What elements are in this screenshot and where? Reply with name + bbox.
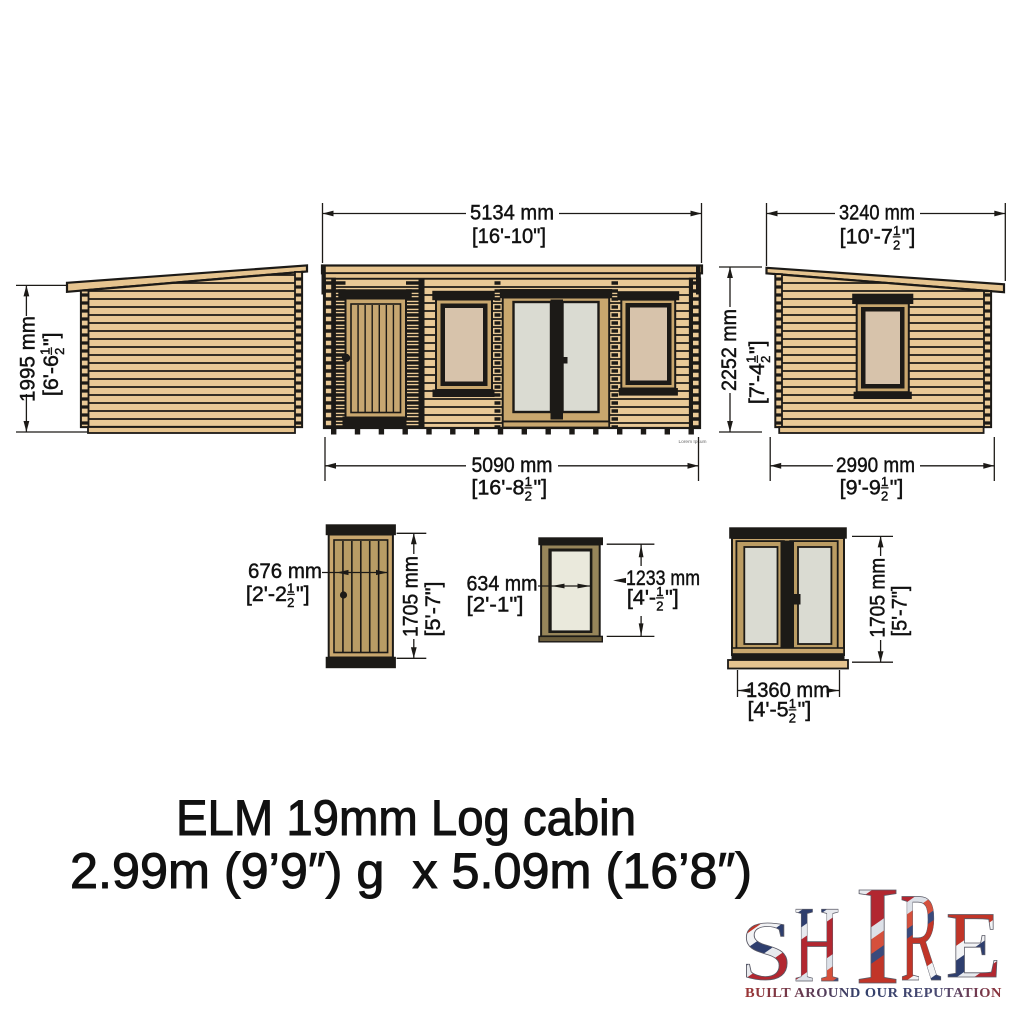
svg-text:2.99m (9’9″) g x 5.09m (16’8″: 2.99m (9’9″) g x 5.09m (16’8″) [70, 843, 752, 899]
svg-text:2990 mm: 2990 mm [836, 453, 915, 477]
svg-text:[4'-5: [4'-5 [747, 698, 788, 722]
svg-text:2: 2 [525, 489, 532, 504]
svg-text:[7'-4: [7'-4 [745, 363, 769, 404]
svg-text:2: 2 [893, 238, 900, 253]
svg-text:2: 2 [789, 711, 796, 726]
svg-text:"]: "] [890, 476, 904, 500]
svg-text:1: 1 [287, 581, 294, 596]
svg-text:2: 2 [656, 599, 663, 614]
svg-text:E: E [946, 892, 1002, 998]
svg-text:"]: "] [798, 698, 812, 722]
svg-text:1: 1 [656, 584, 663, 599]
svg-text:"]: "] [745, 340, 769, 354]
svg-text:3240 mm: 3240 mm [839, 201, 915, 225]
svg-text:1: 1 [881, 474, 888, 489]
svg-text:"]: "] [534, 476, 548, 500]
svg-text:[10'-7: [10'-7 [840, 225, 893, 249]
svg-text:"]: "] [665, 586, 679, 610]
svg-text:BUILT AROUND OUR REPUTATION: BUILT AROUND OUR REPUTATION [745, 985, 1002, 1000]
svg-text:[5'-7"]: [5'-7"] [421, 582, 445, 637]
svg-text:5090 mm: 5090 mm [472, 453, 553, 477]
svg-text:2: 2 [52, 348, 67, 355]
svg-text:Lorem Ipsum: Lorem Ipsum [679, 439, 707, 445]
svg-text:2: 2 [287, 595, 294, 610]
svg-text:[5'-7"]: [5'-7"] [888, 586, 912, 637]
svg-text:"]: "] [39, 332, 63, 346]
svg-text:[9'-9: [9'-9 [840, 476, 881, 500]
svg-text:[2'-2: [2'-2 [246, 582, 287, 606]
svg-text:[4'-: [4'- [627, 586, 656, 610]
svg-text:[2'-1"]: [2'-1"] [467, 593, 524, 617]
svg-text:ELM 19mm Log cabin: ELM 19mm Log cabin [176, 790, 636, 846]
svg-text:1705 mm: 1705 mm [866, 558, 890, 638]
svg-text:1705 mm: 1705 mm [399, 556, 423, 637]
svg-text:1: 1 [789, 696, 796, 711]
svg-text:676 mm: 676 mm [248, 559, 322, 583]
svg-text:2: 2 [758, 356, 773, 363]
svg-text:[16'-8: [16'-8 [471, 476, 524, 500]
svg-text:"]: "] [296, 582, 310, 606]
svg-text:[6'-6: [6'-6 [39, 355, 63, 396]
svg-text:2252 mm: 2252 mm [717, 309, 741, 391]
svg-text:1995 mm: 1995 mm [16, 316, 40, 402]
svg-text:1: 1 [744, 356, 759, 363]
svg-text:5134 mm: 5134 mm [470, 201, 554, 225]
svg-text:1: 1 [525, 474, 532, 489]
svg-text:1: 1 [38, 348, 53, 355]
svg-text:"]: "] [902, 225, 916, 249]
svg-text:[16'-10"]: [16'-10"] [472, 224, 546, 248]
svg-text:2: 2 [881, 489, 888, 504]
svg-text:1: 1 [893, 223, 900, 238]
